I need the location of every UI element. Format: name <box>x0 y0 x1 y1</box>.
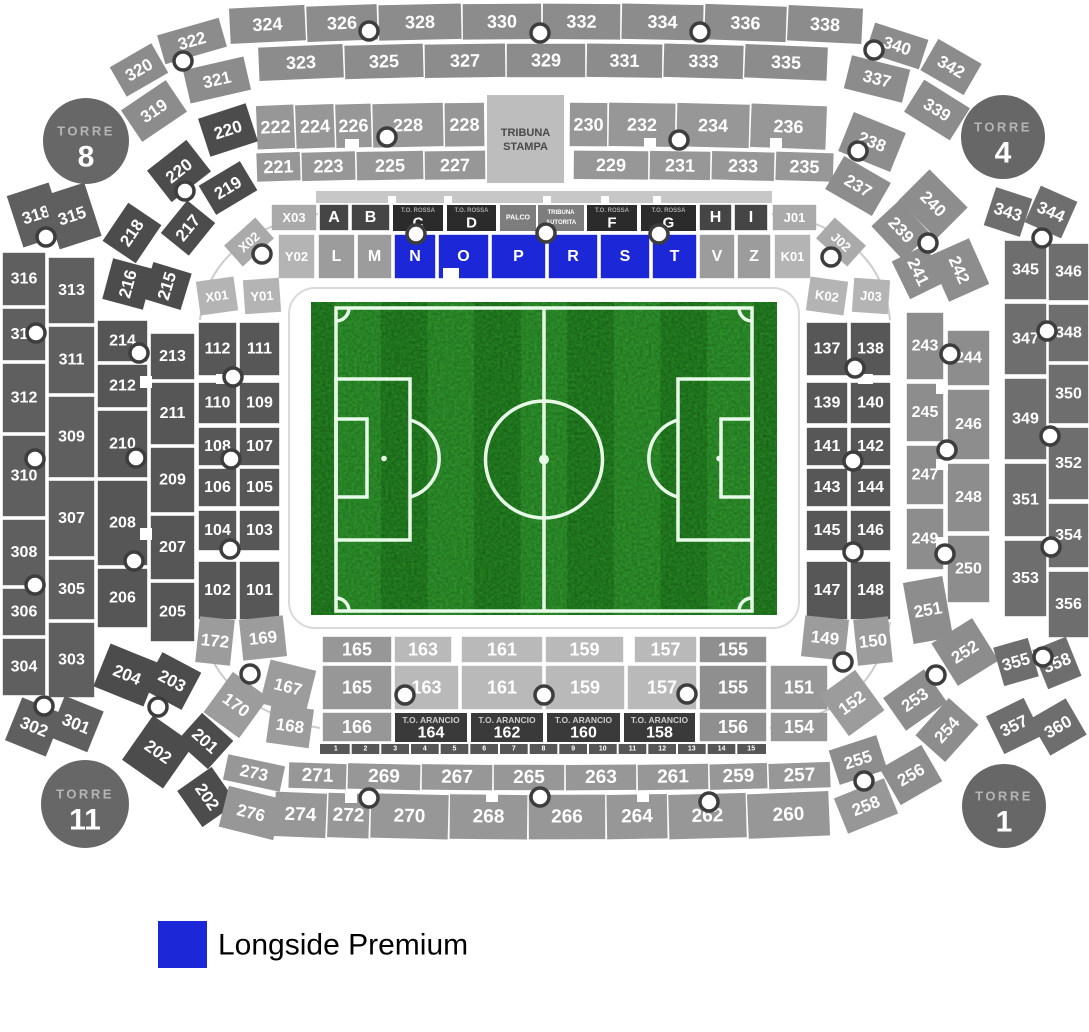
svg-text:4: 4 <box>423 746 427 753</box>
svg-text:15: 15 <box>747 746 755 753</box>
svg-text:349: 349 <box>1012 411 1039 428</box>
svg-text:332: 332 <box>566 11 596 31</box>
svg-text:Longside Premium: Longside Premium <box>218 929 468 962</box>
svg-text:J03: J03 <box>860 288 883 304</box>
svg-text:334: 334 <box>647 12 677 33</box>
svg-text:TRIBUNA: TRIBUNA <box>548 210 576 216</box>
svg-text:326: 326 <box>327 13 358 34</box>
svg-text:B: B <box>365 209 377 226</box>
svg-text:304: 304 <box>11 659 38 676</box>
svg-text:331: 331 <box>609 50 639 70</box>
svg-text:163: 163 <box>411 678 441 698</box>
svg-text:347: 347 <box>1012 331 1039 348</box>
svg-text:159: 159 <box>569 640 599 660</box>
svg-text:157: 157 <box>647 678 677 698</box>
svg-text:208: 208 <box>109 515 136 532</box>
svg-text:329: 329 <box>531 51 561 71</box>
svg-text:264: 264 <box>621 806 653 828</box>
svg-text:143: 143 <box>814 479 841 496</box>
svg-text:1: 1 <box>334 746 338 753</box>
svg-text:207: 207 <box>159 539 186 556</box>
svg-text:109: 109 <box>246 395 273 412</box>
svg-text:213: 213 <box>159 348 186 365</box>
svg-text:161: 161 <box>487 678 517 698</box>
svg-text:5: 5 <box>453 746 457 753</box>
svg-text:316: 316 <box>11 271 38 288</box>
svg-text:102: 102 <box>204 582 231 599</box>
svg-text:270: 270 <box>393 806 425 828</box>
svg-text:14: 14 <box>718 746 726 753</box>
svg-text:T: T <box>670 248 680 265</box>
svg-text:172: 172 <box>200 630 230 652</box>
svg-text:Z: Z <box>749 248 759 265</box>
svg-text:H: H <box>710 209 722 226</box>
svg-text:260: 260 <box>772 804 805 826</box>
svg-text:154: 154 <box>784 717 814 737</box>
svg-text:4: 4 <box>995 137 1012 170</box>
svg-text:325: 325 <box>369 51 400 72</box>
svg-text:228: 228 <box>449 115 479 135</box>
svg-text:310: 310 <box>11 468 38 485</box>
svg-text:155: 155 <box>718 678 748 698</box>
svg-text:234: 234 <box>698 115 729 136</box>
svg-text:7: 7 <box>512 746 516 753</box>
svg-text:160: 160 <box>570 725 597 742</box>
svg-text:M: M <box>368 248 381 265</box>
svg-text:T.O. ROSSA: T.O. ROSSA <box>651 208 686 214</box>
svg-text:211: 211 <box>160 405 186 422</box>
svg-text:353: 353 <box>1012 570 1039 587</box>
svg-text:249: 249 <box>912 531 939 548</box>
svg-text:11: 11 <box>629 746 637 753</box>
svg-text:233: 233 <box>728 156 759 177</box>
svg-text:330: 330 <box>487 11 517 31</box>
svg-text:145: 145 <box>814 522 841 539</box>
svg-text:10: 10 <box>599 746 607 753</box>
svg-text:346: 346 <box>1055 264 1082 281</box>
svg-text:271: 271 <box>301 765 334 787</box>
svg-text:305: 305 <box>58 581 85 598</box>
svg-text:157: 157 <box>650 640 680 660</box>
svg-text:168: 168 <box>275 715 306 738</box>
svg-text:T.O. ARANCIO: T.O. ARANCIO <box>402 715 460 725</box>
svg-text:231: 231 <box>665 155 695 175</box>
svg-text:348: 348 <box>1055 325 1082 342</box>
svg-text:323: 323 <box>286 52 317 73</box>
svg-text:327: 327 <box>450 50 480 70</box>
svg-text:R: R <box>567 248 579 265</box>
svg-text:345: 345 <box>1012 262 1039 279</box>
svg-text:T.O. ROSSA: T.O. ROSSA <box>595 208 630 214</box>
svg-text:263: 263 <box>585 767 617 788</box>
svg-text:112: 112 <box>205 341 231 358</box>
svg-text:L: L <box>332 248 342 265</box>
svg-text:TORRE: TORRE <box>56 787 114 802</box>
svg-text:141: 141 <box>814 438 841 455</box>
svg-text:265: 265 <box>513 767 545 788</box>
svg-text:110: 110 <box>205 395 231 412</box>
svg-text:J01: J01 <box>784 210 806 225</box>
svg-text:272: 272 <box>332 805 364 827</box>
svg-text:257: 257 <box>783 765 815 787</box>
svg-text:156: 156 <box>718 717 748 737</box>
svg-text:N: N <box>409 248 421 265</box>
svg-text:235: 235 <box>789 156 820 177</box>
svg-text:224: 224 <box>300 116 331 137</box>
svg-text:228: 228 <box>393 115 423 136</box>
svg-text:137: 137 <box>814 341 841 358</box>
svg-text:STAMPA: STAMPA <box>503 141 548 153</box>
svg-text:107: 107 <box>246 438 273 455</box>
svg-text:266: 266 <box>551 806 583 827</box>
svg-text:101: 101 <box>246 582 273 599</box>
svg-text:I: I <box>749 209 753 226</box>
svg-text:151: 151 <box>784 678 814 698</box>
svg-text:T.O. ROSSA: T.O. ROSSA <box>401 208 436 214</box>
svg-text:324: 324 <box>252 14 283 35</box>
svg-text:105: 105 <box>246 479 273 496</box>
svg-text:226: 226 <box>338 115 369 136</box>
svg-text:12: 12 <box>658 746 666 753</box>
svg-text:8: 8 <box>78 141 95 174</box>
svg-text:308: 308 <box>11 544 38 561</box>
svg-text:2: 2 <box>364 746 368 753</box>
svg-text:209: 209 <box>159 472 186 489</box>
svg-text:245: 245 <box>912 404 939 421</box>
svg-text:225: 225 <box>375 155 405 176</box>
svg-text:335: 335 <box>771 52 802 73</box>
svg-text:250: 250 <box>955 561 982 578</box>
svg-text:K01: K01 <box>781 249 805 264</box>
svg-text:232: 232 <box>627 115 657 135</box>
svg-text:3: 3 <box>393 746 397 753</box>
svg-text:307: 307 <box>58 510 85 527</box>
svg-text:161: 161 <box>487 640 517 660</box>
svg-text:205: 205 <box>159 604 186 621</box>
svg-text:X03: X03 <box>282 210 305 225</box>
svg-text:13: 13 <box>688 746 696 753</box>
svg-text:Y02: Y02 <box>285 249 308 264</box>
svg-text:TORRE: TORRE <box>975 789 1033 804</box>
svg-text:230: 230 <box>573 114 603 134</box>
svg-text:P: P <box>513 248 524 265</box>
svg-text:223: 223 <box>313 156 344 177</box>
svg-text:148: 148 <box>857 582 884 599</box>
svg-text:142: 142 <box>857 438 884 455</box>
svg-text:146: 146 <box>857 522 884 539</box>
svg-text:1: 1 <box>996 806 1013 839</box>
svg-text:274: 274 <box>284 804 317 826</box>
svg-text:144: 144 <box>857 479 884 496</box>
svg-text:X01: X01 <box>204 287 229 305</box>
svg-text:TORRE: TORRE <box>57 124 115 139</box>
svg-text:243: 243 <box>912 338 939 355</box>
svg-text:309: 309 <box>58 429 85 446</box>
svg-text:336: 336 <box>730 12 761 33</box>
svg-text:352: 352 <box>1055 455 1082 472</box>
svg-text:159: 159 <box>570 678 600 698</box>
svg-text:165: 165 <box>342 678 372 698</box>
svg-text:158: 158 <box>646 725 673 742</box>
svg-text:261: 261 <box>657 766 689 788</box>
svg-text:328: 328 <box>405 12 435 33</box>
svg-text:106: 106 <box>204 479 231 496</box>
svg-text:246: 246 <box>955 416 982 433</box>
svg-text:165: 165 <box>342 640 372 660</box>
svg-text:140: 140 <box>857 395 884 412</box>
svg-text:351: 351 <box>1012 492 1039 509</box>
svg-text:T.O. ARANCIO: T.O. ARANCIO <box>631 715 689 725</box>
svg-text:A: A <box>328 209 340 226</box>
svg-text:T.O. ARANCIO: T.O. ARANCIO <box>555 715 613 725</box>
svg-text:166: 166 <box>342 717 372 737</box>
svg-text:236: 236 <box>773 116 804 137</box>
svg-text:206: 206 <box>109 590 136 607</box>
svg-text:267: 267 <box>441 767 473 788</box>
svg-text:155: 155 <box>718 640 748 660</box>
svg-text:350: 350 <box>1055 386 1082 403</box>
svg-text:222: 222 <box>260 116 291 137</box>
svg-text:6: 6 <box>482 746 486 753</box>
svg-text:269: 269 <box>368 766 400 788</box>
svg-text:O: O <box>457 248 469 265</box>
svg-text:PALCO: PALCO <box>506 215 531 222</box>
svg-text:D: D <box>466 215 477 232</box>
svg-text:338: 338 <box>810 14 841 35</box>
svg-text:306: 306 <box>11 604 38 621</box>
svg-text:9: 9 <box>571 746 575 753</box>
svg-text:163: 163 <box>408 640 438 660</box>
svg-text:F: F <box>607 215 616 232</box>
svg-text:T.O. ROSSA: T.O. ROSSA <box>454 208 489 214</box>
svg-text:149: 149 <box>810 627 840 649</box>
svg-text:139: 139 <box>814 395 841 412</box>
svg-text:227: 227 <box>440 155 470 175</box>
svg-text:103: 103 <box>246 522 273 539</box>
svg-text:150: 150 <box>858 630 888 652</box>
svg-text:162: 162 <box>494 725 521 742</box>
svg-text:147: 147 <box>814 582 841 599</box>
svg-text:104: 104 <box>204 522 231 539</box>
svg-text:333: 333 <box>688 51 719 72</box>
svg-text:303: 303 <box>58 652 85 669</box>
svg-text:11: 11 <box>69 804 101 837</box>
svg-text:S: S <box>620 248 631 265</box>
svg-text:268: 268 <box>473 806 505 827</box>
svg-text:259: 259 <box>722 765 754 787</box>
svg-text:8: 8 <box>542 746 546 753</box>
svg-text:TRIBUNA: TRIBUNA <box>501 127 551 139</box>
svg-text:T.O. ARANCIO: T.O. ARANCIO <box>478 715 536 725</box>
svg-text:Y01: Y01 <box>250 288 274 305</box>
svg-text:TORRE: TORRE <box>974 120 1032 135</box>
svg-text:311: 311 <box>59 352 85 369</box>
svg-text:221: 221 <box>263 156 294 177</box>
svg-text:111: 111 <box>247 341 272 358</box>
svg-text:212: 212 <box>109 378 136 395</box>
svg-text:356: 356 <box>1055 596 1082 613</box>
svg-text:229: 229 <box>596 155 626 175</box>
svg-text:312: 312 <box>11 390 38 407</box>
svg-text:247: 247 <box>912 467 939 484</box>
svg-text:248: 248 <box>955 489 982 506</box>
svg-text:138: 138 <box>857 341 884 358</box>
svg-text:V: V <box>712 248 723 265</box>
svg-text:313: 313 <box>58 282 85 299</box>
svg-text:169: 169 <box>248 627 278 649</box>
svg-text:164: 164 <box>418 725 445 742</box>
